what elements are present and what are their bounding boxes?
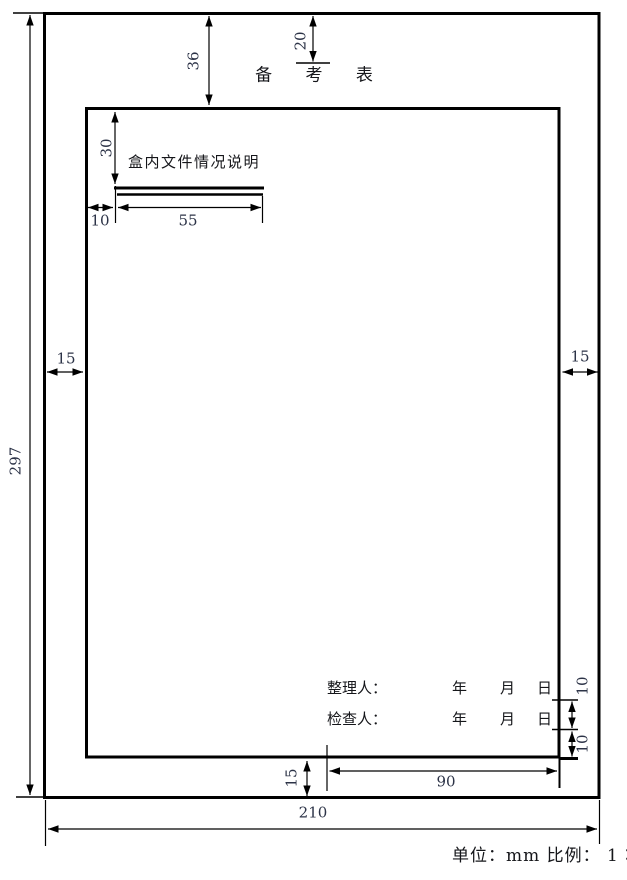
- signature-row1-month: 月: [500, 681, 515, 696]
- dim-36-label: 36: [187, 51, 202, 70]
- signature-row1-year: 年: [452, 681, 467, 696]
- dim-10-row1-label: 10: [576, 676, 591, 695]
- dim-210-label: 210: [299, 806, 328, 821]
- dim-90-label: 90: [436, 775, 455, 790]
- signature-row1-label: 整理人：: [327, 681, 387, 696]
- signature-row2-day: 日: [537, 712, 552, 727]
- dim-15-right-label: 15: [570, 350, 589, 365]
- dimension-drawing: [0, 0, 627, 880]
- inner-form-rect: [87, 109, 560, 758]
- dim-297-label: 297: [9, 447, 24, 476]
- dim-10-row2-label: 10: [576, 734, 591, 753]
- signature-row2-label: 检查人：: [327, 712, 387, 727]
- outer-page-rect: [45, 14, 600, 798]
- signature-row1-day: 日: [537, 681, 552, 696]
- dim-30-label: 30: [100, 138, 115, 157]
- dim-55-label: 55: [178, 214, 197, 229]
- signature-row2-month: 月: [500, 712, 515, 727]
- spec-drawing-page: 297 36 20 30 10 55 15 15 10 10 15 90 210…: [0, 0, 627, 880]
- signature-row2-year: 年: [452, 712, 467, 727]
- dim-15-left-label: 15: [56, 352, 75, 367]
- note-heading: 盒内文件情况说明: [128, 155, 260, 170]
- dim-20-label: 20: [294, 31, 309, 50]
- form-title: 备 考 表: [255, 68, 387, 85]
- dim-15-bottom-label: 15: [285, 768, 300, 787]
- unit-scale-caption: 单位：mm 比例： 1∶2: [452, 848, 627, 865]
- dim-10-indent-label: 10: [90, 214, 109, 229]
